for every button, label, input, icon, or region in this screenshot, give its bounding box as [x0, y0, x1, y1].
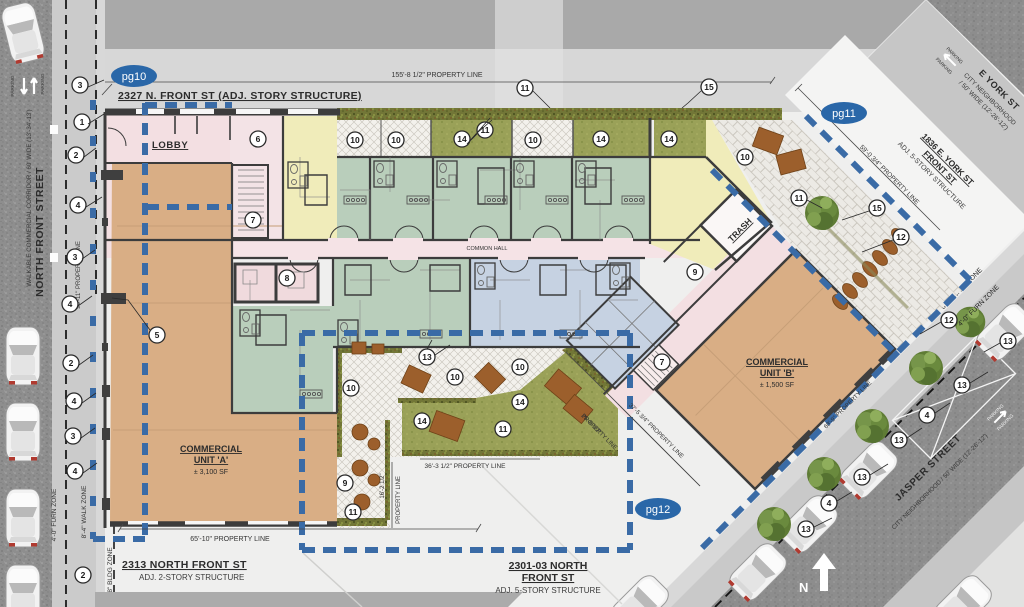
- svg-text:13: 13: [801, 524, 811, 534]
- svg-text:7: 7: [251, 215, 256, 225]
- svg-text:10: 10: [450, 372, 460, 382]
- svg-text:9: 9: [343, 478, 348, 488]
- svg-text:12: 12: [944, 315, 954, 325]
- svg-text:13: 13: [957, 380, 967, 390]
- svg-text:4: 4: [827, 498, 832, 508]
- svg-text:LOBBY: LOBBY: [152, 140, 188, 151]
- svg-text:1: 1: [80, 117, 85, 127]
- svg-text:COMMON HALL: COMMON HALL: [467, 246, 508, 252]
- svg-text:NORTH FRONT STREET: NORTH FRONT STREET: [34, 167, 46, 297]
- svg-text:13: 13: [1003, 336, 1013, 346]
- svg-text:14: 14: [515, 397, 525, 407]
- svg-text:4: 4: [72, 396, 77, 406]
- svg-text:11: 11: [795, 193, 804, 203]
- svg-text:8" BLDG ZONE: 8" BLDG ZONE: [107, 547, 114, 593]
- svg-text:14: 14: [457, 134, 467, 144]
- svg-text:10: 10: [346, 383, 356, 393]
- svg-text:± 1,500 SF: ± 1,500 SF: [760, 382, 794, 389]
- svg-text:5: 5: [155, 330, 160, 340]
- svg-text:14: 14: [417, 416, 427, 426]
- svg-text:PARKING: PARKING: [10, 75, 16, 97]
- svg-text:8: 8: [285, 273, 290, 283]
- svg-text:4: 4: [73, 466, 78, 476]
- svg-text:UNIT 'A': UNIT 'A': [194, 455, 228, 465]
- svg-text:11: 11: [521, 83, 530, 93]
- svg-text:ADJ. 2-STORY STRUCTURE: ADJ. 2-STORY STRUCTURE: [139, 573, 244, 582]
- svg-text:8'-4" WALK ZONE: 8'-4" WALK ZONE: [81, 485, 88, 538]
- svg-text:UNIT 'B': UNIT 'B': [760, 368, 794, 378]
- svg-text:4: 4: [68, 299, 73, 309]
- svg-text:4: 4: [925, 410, 930, 420]
- svg-text:FRONT ST: FRONT ST: [522, 572, 575, 584]
- svg-text:15: 15: [704, 82, 714, 92]
- svg-text:10: 10: [515, 362, 525, 372]
- svg-text:3: 3: [71, 431, 76, 441]
- svg-text:13: 13: [894, 435, 904, 445]
- svg-text:13: 13: [422, 352, 432, 362]
- svg-text:2: 2: [69, 358, 74, 368]
- svg-text:11: 11: [349, 507, 358, 517]
- svg-text:4'-0" FURN ZONE: 4'-0" FURN ZONE: [51, 488, 58, 541]
- svg-text:12: 12: [896, 232, 906, 242]
- svg-text:WALKABLE COMMERCIAL CORRIDOR /: WALKABLE COMMERCIAL CORRIDOR / 60' WIDE …: [26, 109, 33, 286]
- svg-text:14: 14: [596, 134, 606, 144]
- svg-text:COMMERCIAL: COMMERCIAL: [180, 444, 242, 454]
- svg-text:36'-3 1/2" PROPERTY LINE: 36'-3 1/2" PROPERTY LINE: [425, 463, 507, 470]
- svg-text:2313 NORTH FRONT ST: 2313 NORTH FRONT ST: [122, 559, 247, 571]
- svg-text:15: 15: [872, 203, 882, 213]
- svg-text:PROPERTY LINE: PROPERTY LINE: [396, 476, 402, 524]
- svg-text:2: 2: [81, 570, 86, 580]
- svg-text:9: 9: [693, 267, 698, 277]
- svg-text:10: 10: [350, 135, 360, 145]
- svg-text:3: 3: [73, 252, 78, 262]
- svg-text:pg12: pg12: [646, 504, 670, 516]
- svg-text:11: 11: [499, 424, 508, 434]
- svg-text:7: 7: [660, 357, 665, 367]
- svg-text:16'-2 1/2": 16'-2 1/2": [380, 473, 386, 498]
- svg-text:3: 3: [78, 80, 83, 90]
- svg-text:155'-8 1/2" PROPERTY LINE: 155'-8 1/2" PROPERTY LINE: [391, 72, 482, 79]
- svg-text:COMMERCIAL: COMMERCIAL: [746, 357, 808, 367]
- svg-text:PARKING: PARKING: [40, 73, 46, 95]
- svg-text:11: 11: [481, 125, 490, 135]
- svg-text:2: 2: [74, 150, 79, 160]
- svg-text:10: 10: [391, 135, 401, 145]
- svg-text:10: 10: [528, 135, 538, 145]
- svg-text:13: 13: [857, 472, 867, 482]
- svg-text:± 3,100 SF: ± 3,100 SF: [194, 469, 228, 476]
- svg-text:2301-03 NORTH: 2301-03 NORTH: [509, 560, 588, 572]
- svg-text:14: 14: [664, 134, 674, 144]
- svg-text:4: 4: [76, 200, 81, 210]
- svg-text:10: 10: [740, 152, 750, 162]
- svg-text:pg11: pg11: [832, 108, 856, 120]
- svg-text:pg10: pg10: [122, 71, 146, 83]
- svg-text:N: N: [799, 580, 808, 595]
- svg-text:65'-10" PROPERTY LINE: 65'-10" PROPERTY LINE: [190, 536, 270, 543]
- svg-text:ADJ. 5-STORY STRUCTURE: ADJ. 5-STORY STRUCTURE: [495, 586, 600, 595]
- svg-text:2327 N. FRONT ST (ADJ. STORY S: 2327 N. FRONT ST (ADJ. STORY STRUCTURE): [118, 90, 362, 102]
- svg-text:6: 6: [256, 134, 261, 144]
